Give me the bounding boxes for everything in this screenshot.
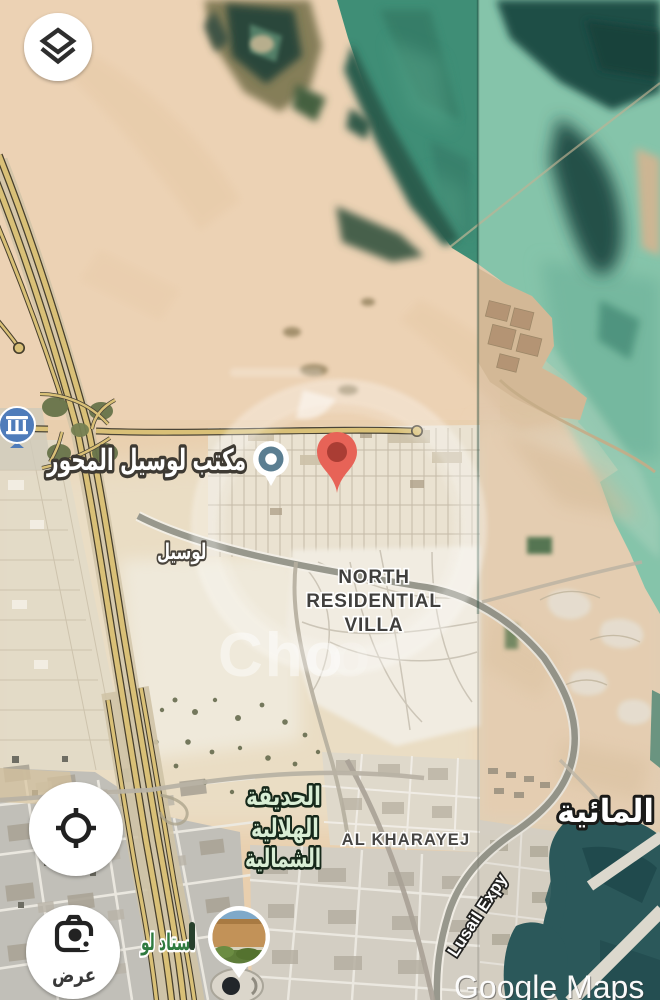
svg-text:NORTH: NORTH [338, 567, 410, 588]
svg-text:VILLA: VILLA [345, 615, 404, 636]
svg-text:Google Maps: Google Maps [454, 969, 644, 1000]
svg-text:Cho: Cho [218, 621, 345, 690]
svg-text:RESIDENTIAL: RESIDENTIAL [306, 591, 441, 612]
svg-text:AL KHARAYEJ: AL KHARAYEJ [342, 831, 471, 849]
